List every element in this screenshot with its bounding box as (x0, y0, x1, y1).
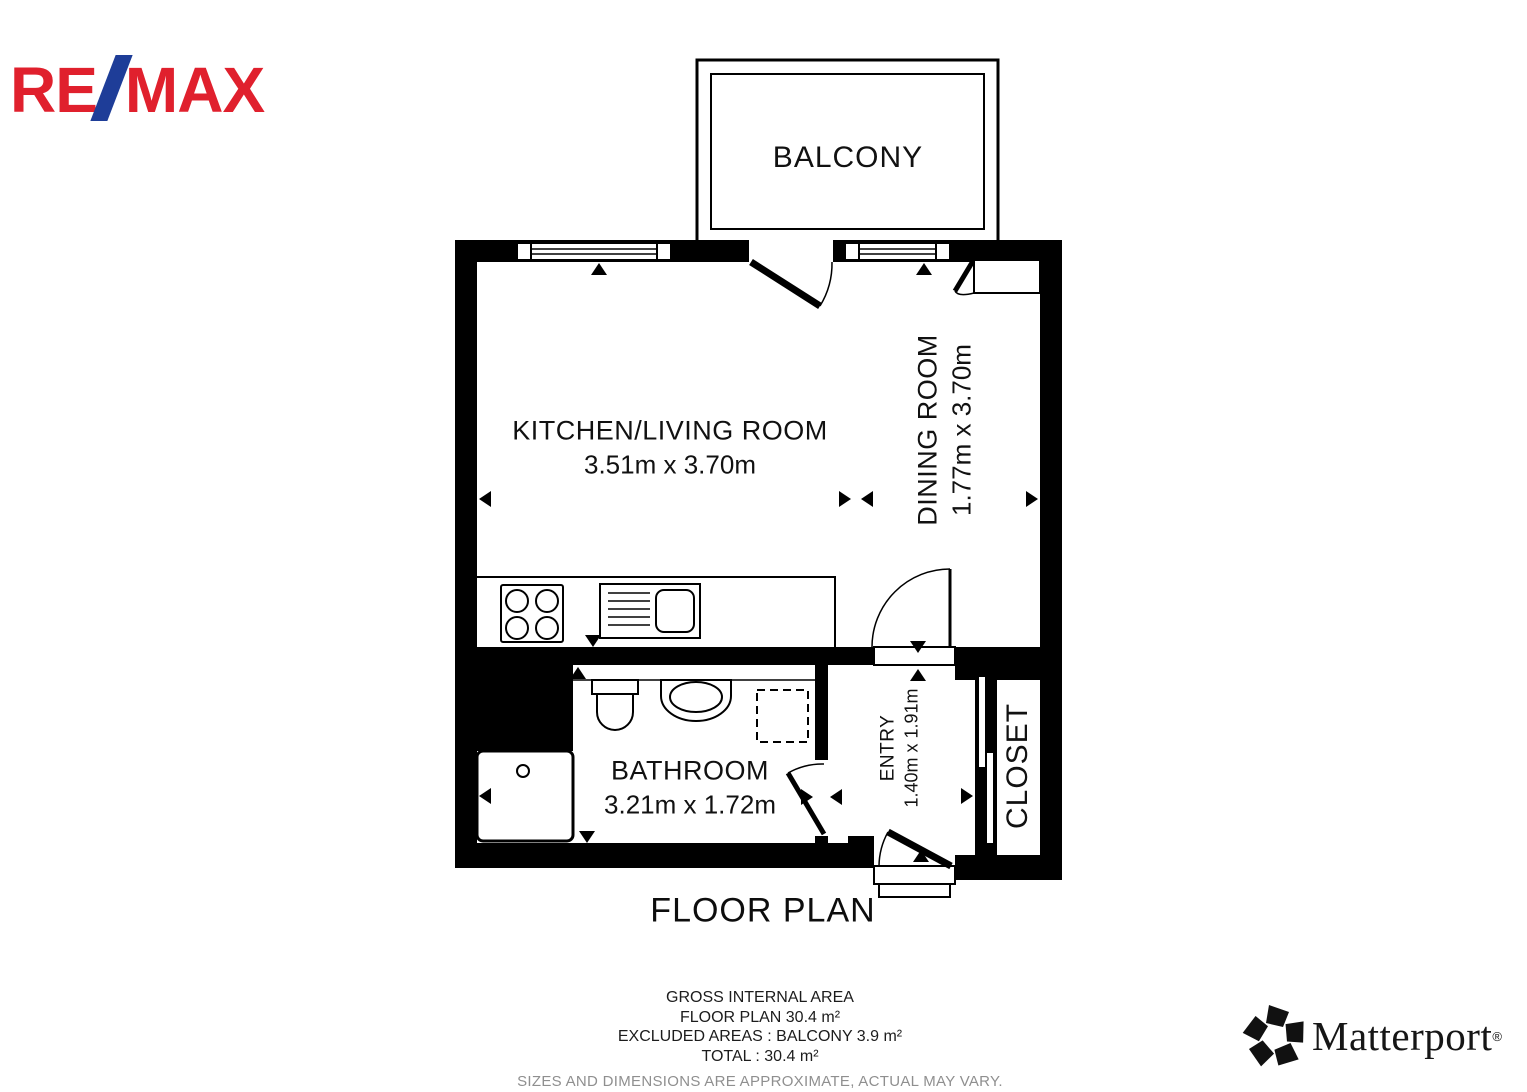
matterport-registered-mark: ® (1492, 1029, 1502, 1044)
room-label-kitchen-living: KITCHEN/LIVING ROOM 3.51m x 3.70m (512, 416, 828, 481)
dining-entry-door (872, 569, 955, 665)
matterport-icon (1242, 1005, 1310, 1071)
room-label-entry: ENTRY 1.40m x 1.91m (878, 688, 923, 807)
matterport-wordmark: Matterport (1312, 1012, 1492, 1060)
toilet-icon (592, 680, 638, 730)
kitchen-sink-icon (600, 584, 700, 638)
summary-excluded: EXCLUDED AREAS : BALCONY 3.9 m² (517, 1027, 1003, 1047)
room-label-bathroom: BATHROOM 3.21m x 1.72m (604, 756, 776, 821)
area-summary: GROSS INTERNAL AREA FLOOR PLAN 30.4 m² E… (517, 988, 1003, 1092)
summary-heading: GROSS INTERNAL AREA (517, 988, 1003, 1008)
matterport-logo: Matterport ® (1312, 1012, 1502, 1060)
summary-disclaimer: SIZES AND DIMENSIONS ARE APPROXIMATE, AC… (517, 1072, 1003, 1092)
stove-icon (501, 585, 563, 642)
bathroom-sink-icon (661, 680, 731, 721)
room-label-closet: CLOSET (1001, 703, 1035, 829)
kitchen-counter (477, 577, 835, 647)
window-icon-left (517, 243, 671, 260)
room-label-balcony: BALCONY (773, 141, 923, 175)
washer-space-dashed-box (757, 690, 808, 742)
summary-floor-plan: FLOOR PLAN 30.4 m² (517, 1008, 1003, 1028)
page-title: FLOOR PLAN (650, 892, 875, 931)
room-label-dining: DINING ROOM 1.77m x 3.70m (913, 334, 978, 526)
entry-door (874, 832, 955, 897)
window-icon-right (845, 243, 950, 260)
corner-cabinet-door (955, 260, 1040, 295)
summary-total: TOTAL : 30.4 m² (517, 1047, 1003, 1067)
shower-icon (477, 751, 573, 841)
floor-plan-page: { "logos": { "remax": { "re": "RE", "max… (0, 0, 1527, 1080)
balcony-door (749, 240, 833, 306)
